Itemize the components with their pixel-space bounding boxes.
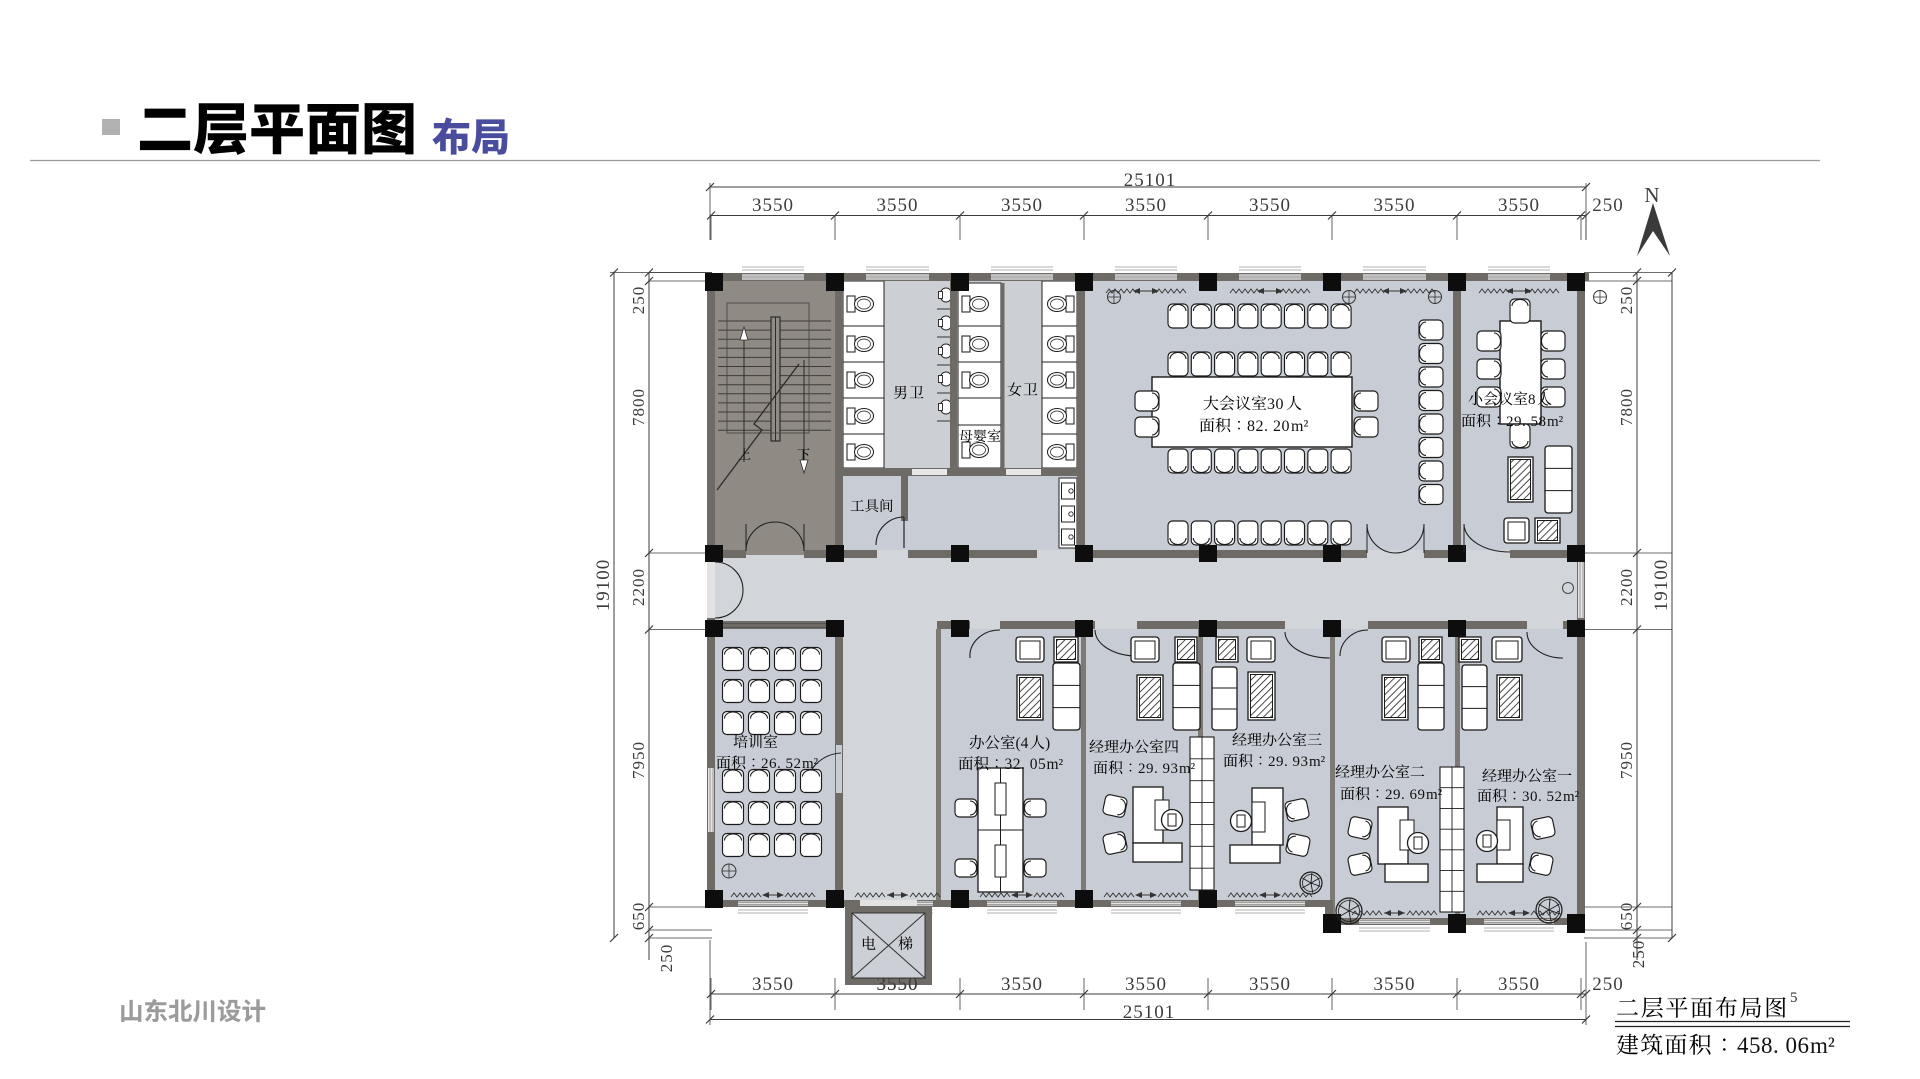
svg-text:N: N bbox=[1644, 183, 1659, 207]
svg-text:3550: 3550 bbox=[752, 195, 794, 216]
svg-text:3550: 3550 bbox=[1249, 195, 1291, 216]
svg-text:3550: 3550 bbox=[1249, 974, 1291, 995]
svg-text:m²: m² bbox=[1047, 756, 1064, 773]
svg-text:7800: 7800 bbox=[1617, 388, 1636, 426]
svg-text:m²: m² bbox=[1547, 414, 1564, 430]
svg-text:m²: m² bbox=[1563, 789, 1580, 805]
svg-text:7800: 7800 bbox=[629, 388, 648, 426]
svg-text:3550: 3550 bbox=[1498, 195, 1540, 216]
svg-text:3550: 3550 bbox=[1001, 974, 1043, 995]
svg-text:8: 8 bbox=[1528, 392, 1536, 408]
svg-text:30. 52: 30. 52 bbox=[1522, 789, 1563, 805]
svg-text:3550: 3550 bbox=[1001, 195, 1043, 216]
svg-text:26. 52: 26. 52 bbox=[761, 756, 802, 772]
svg-text:250: 250 bbox=[1592, 974, 1624, 995]
svg-text:19100: 19100 bbox=[1651, 559, 1672, 612]
svg-text:): ) bbox=[1045, 735, 1050, 752]
svg-text:29. 93: 29. 93 bbox=[1268, 754, 1309, 770]
svg-text:3550: 3550 bbox=[1125, 195, 1167, 216]
svg-text:29. 69: 29. 69 bbox=[1385, 787, 1426, 803]
svg-text:250: 250 bbox=[1629, 940, 1648, 969]
svg-text:29. 58: 29. 58 bbox=[1506, 414, 1547, 430]
svg-text:82. 20: 82. 20 bbox=[1247, 418, 1290, 435]
svg-text:3550: 3550 bbox=[877, 974, 919, 995]
svg-text:5: 5 bbox=[1790, 990, 1798, 1006]
svg-text:3550: 3550 bbox=[1374, 974, 1416, 995]
svg-text:19100: 19100 bbox=[593, 559, 614, 612]
svg-text:250: 250 bbox=[1617, 286, 1636, 315]
svg-text:2200: 2200 bbox=[629, 568, 648, 606]
svg-text:m²: m² bbox=[1426, 787, 1443, 803]
svg-text:650: 650 bbox=[1617, 902, 1636, 931]
svg-text:m²: m² bbox=[1309, 754, 1326, 770]
svg-text:29. 93: 29. 93 bbox=[1138, 761, 1179, 777]
svg-text:3550: 3550 bbox=[1125, 974, 1167, 995]
svg-text:30: 30 bbox=[1267, 396, 1284, 413]
svg-text:7950: 7950 bbox=[1617, 741, 1636, 779]
svg-text:32. 05: 32. 05 bbox=[1005, 756, 1047, 773]
svg-text:3550: 3550 bbox=[877, 195, 919, 216]
svg-text:3550: 3550 bbox=[1374, 195, 1416, 216]
svg-text:250: 250 bbox=[1592, 195, 1624, 216]
svg-text:458. 06: 458. 06 bbox=[1737, 1033, 1810, 1058]
svg-text:2200: 2200 bbox=[1617, 568, 1636, 606]
svg-text:7950: 7950 bbox=[629, 741, 648, 779]
svg-text:(4: (4 bbox=[1016, 735, 1029, 752]
svg-text:25101: 25101 bbox=[1123, 1002, 1176, 1023]
svg-text:250: 250 bbox=[657, 944, 676, 973]
svg-text:m²: m² bbox=[802, 756, 819, 772]
svg-text:3550: 3550 bbox=[752, 974, 794, 995]
svg-text:25101: 25101 bbox=[1124, 170, 1177, 191]
svg-text:m²: m² bbox=[1291, 418, 1308, 435]
svg-text:250: 250 bbox=[629, 286, 648, 315]
svg-text:650: 650 bbox=[629, 902, 648, 931]
svg-text:m²: m² bbox=[1179, 761, 1196, 777]
svg-text:m²: m² bbox=[1810, 1033, 1835, 1058]
svg-text:3550: 3550 bbox=[1498, 974, 1540, 995]
